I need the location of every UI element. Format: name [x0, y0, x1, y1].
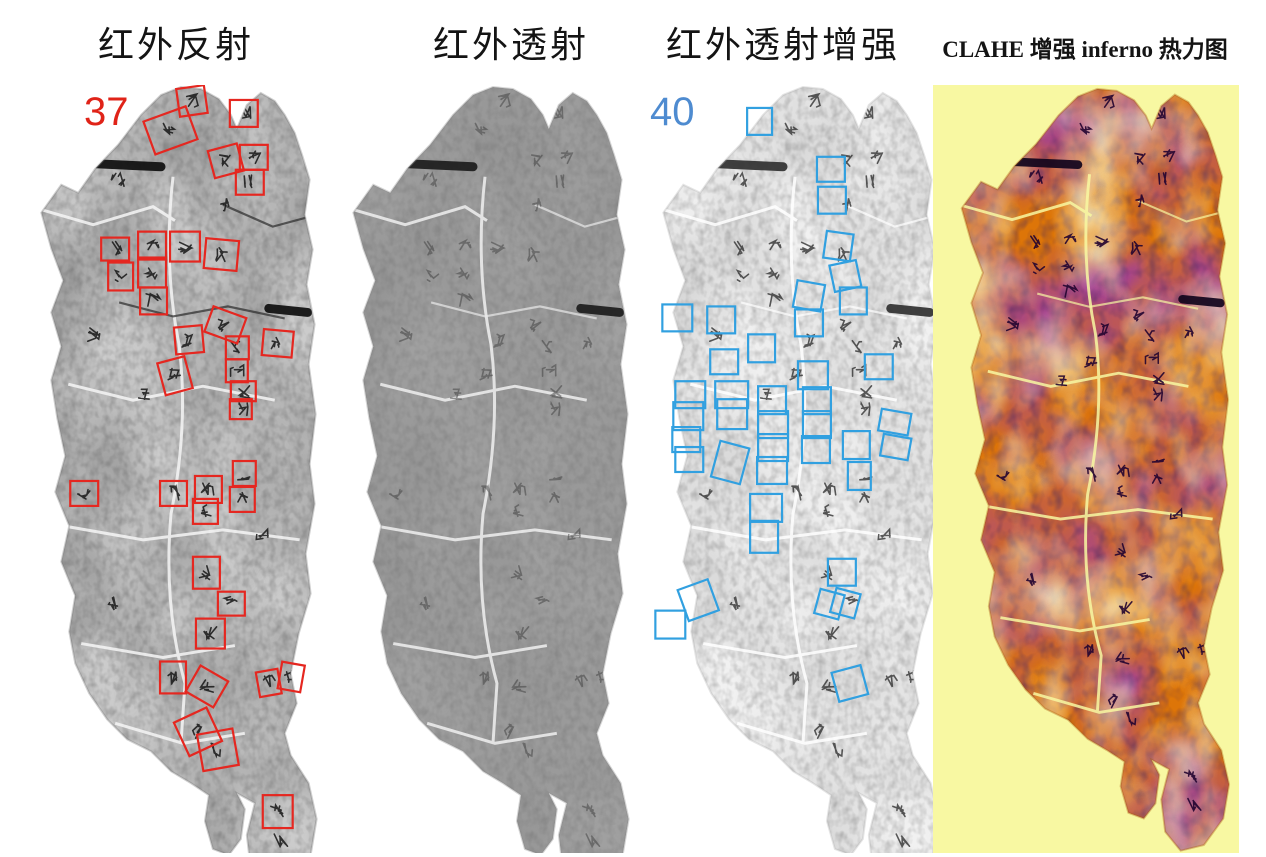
- panel-title-ir-reflectance: 红外反射: [98, 16, 254, 68]
- panel-title-ir-transmission: 红外透射: [433, 16, 589, 68]
- panel-ir-transmission-enhanced-image: [642, 85, 948, 853]
- panel-clahe-inferno-heatmap-image: [933, 85, 1239, 853]
- panel-title-clahe-inferno-heatmap: CLAHE 增强 inferno 热力图: [942, 30, 1228, 64]
- panel-ir-transmission-image: [332, 85, 638, 853]
- figure-canvas: 红外反射 红外透射 红外透射增强 CLAHE 增强 inferno 热力图 37…: [0, 0, 1266, 857]
- panel-title-ir-transmission-enhanced: 红外透射增强: [666, 16, 900, 68]
- detection-box: [655, 611, 685, 639]
- panel-ir-reflectance-image: [20, 85, 326, 853]
